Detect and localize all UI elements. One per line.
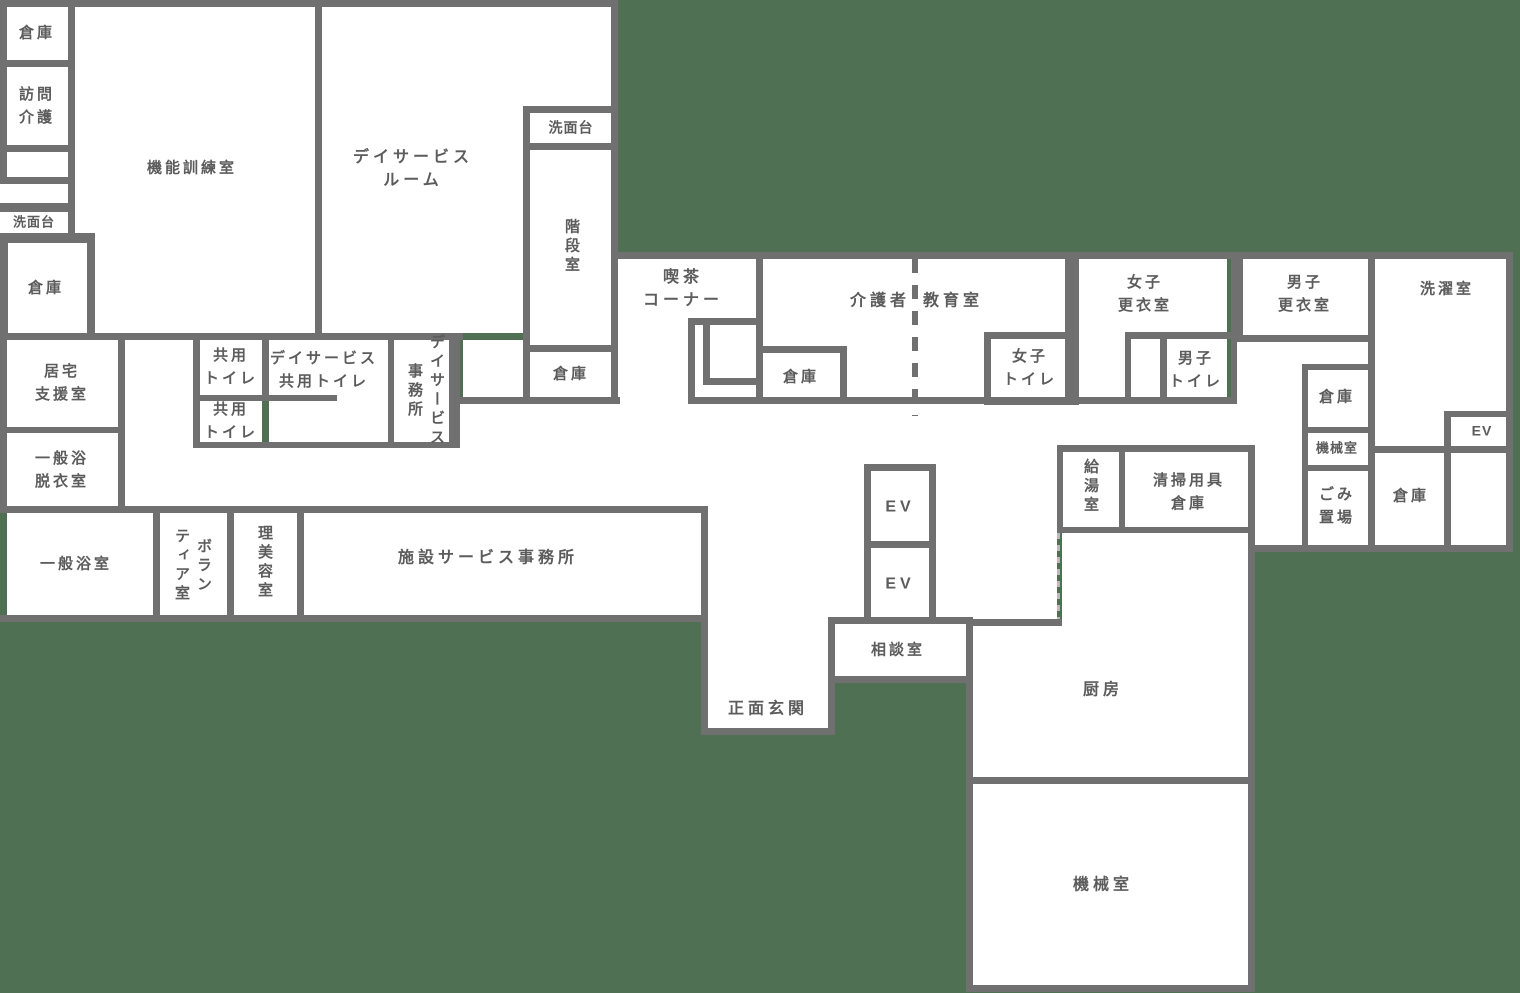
floor-kitchen-upper (1062, 533, 1248, 628)
room-label-machine-room-small: 機械室 (1316, 437, 1358, 460)
wall-segment (970, 619, 1062, 626)
room-label-caregiver: 介護者 (850, 290, 910, 313)
wall-segment (1444, 411, 1451, 545)
room-label-shared-toilet-1: 共用 トイレ (204, 344, 258, 390)
floor-strip-right (1237, 342, 1368, 364)
wall-segment (966, 777, 1255, 784)
wall-segment (0, 0, 7, 184)
wall-segment (1302, 364, 1308, 552)
floor-entrance-corridor (708, 404, 832, 728)
wall-segment (1371, 446, 1513, 453)
room-label-consultation: 相談室 (871, 639, 925, 662)
wall-segment (0, 233, 95, 243)
wall-segment (1057, 527, 1255, 533)
room-label-volunteer-room: ボラン ティア室 (170, 528, 214, 604)
room-label-home-visit-care: 訪問 介護 (19, 83, 55, 129)
wall-segment (297, 513, 304, 615)
room-label-cleaning-storage: 清掃用具 倉庫 (1153, 469, 1225, 515)
wall-segment (688, 318, 758, 325)
room-label-cafe-corner: 喫茶 コーナー (643, 266, 723, 312)
wall-segment (0, 177, 75, 184)
wall-segment (1160, 339, 1167, 397)
room-label-storage-right-2: 倉庫 (1393, 485, 1429, 508)
wall-segment (701, 728, 835, 735)
room-label-stairwell: 階段室 (560, 219, 582, 276)
room-label-mens-locker: 男子 更衣室 (1278, 271, 1332, 317)
wall-segment (1248, 545, 1513, 552)
wall-segment (701, 506, 708, 735)
room-label-general-bathroom: 一般浴室 (40, 553, 112, 576)
room-label-storage-stair: 倉庫 (553, 363, 589, 386)
wall-segment (388, 340, 394, 442)
wall-segment (1231, 342, 1237, 404)
floor-unlabeled-small (7, 152, 68, 177)
wall-segment (0, 60, 75, 67)
wall-segment (1368, 252, 1375, 545)
wall-segment (828, 683, 835, 735)
room-label-main-entrance: 正面玄関 (728, 698, 808, 721)
wall-segment (0, 506, 708, 513)
room-label-ds-shared-toilet: デイサービス 共用トイレ (270, 347, 378, 393)
room-label-education-room: 教育室 (923, 290, 983, 313)
room-label-elevator-2: EV (885, 573, 914, 596)
wall-segment (87, 233, 95, 333)
wall-segment (756, 252, 763, 404)
room-label-day-service-office: デイサービス 事務所 (403, 334, 447, 448)
room-label-storage-left-2: 倉庫 (28, 277, 64, 300)
wall-segment (227, 513, 234, 615)
wall-segment (68, 0, 75, 240)
room-label-washstand-left: 洗面台 (13, 211, 55, 234)
wall-segment (688, 397, 1233, 404)
wall-segment (966, 676, 973, 992)
wall-segment (523, 106, 530, 404)
wall-segment (1125, 332, 1233, 339)
room-label-general-bath-dressing: 一般浴 脱衣室 (35, 447, 89, 493)
kitchen-dashed-line (1057, 533, 1060, 619)
room-label-barber-beauty: 理美容室 (253, 525, 275, 601)
wall-segment (118, 333, 125, 513)
wall-segment (1302, 427, 1368, 433)
wall-segment (1057, 445, 1255, 452)
wall-segment (1057, 445, 1063, 533)
wall-segment (449, 335, 460, 448)
wall-segment (1506, 252, 1513, 552)
floor-hall-west (125, 448, 708, 506)
floor-entry-gap (0, 184, 68, 203)
room-label-elevator-1: EV (885, 496, 914, 519)
room-label-elevator-right: EV (1472, 420, 1493, 443)
wall-segment (0, 0, 618, 7)
wall-segment (1065, 252, 1079, 404)
wall-segment (523, 143, 618, 150)
room-label-womens-toilet: 女子 トイレ (1003, 345, 1057, 391)
cafe-inner-wall (703, 325, 758, 385)
wall-segment (1248, 445, 1255, 992)
wall-segment (0, 243, 8, 333)
wall-segment (966, 985, 1255, 992)
floor-slot-passage (463, 340, 528, 397)
wall-segment (523, 106, 618, 113)
wall-segment (611, 0, 618, 404)
education-room-divider-dashed-line (912, 259, 918, 416)
wall-segment (1125, 339, 1131, 397)
room-label-kitchen: 厨房 (1083, 679, 1123, 702)
room-label-mens-toilet: 男子 トイレ (1169, 347, 1223, 393)
wall-segment (0, 333, 7, 513)
wall-segment (1448, 411, 1513, 417)
room-label-washstand-stair: 洗面台 (549, 117, 594, 140)
room-label-day-service-room: デイサービス ルーム (353, 146, 473, 192)
wall-segment (1302, 465, 1368, 471)
wall-segment (449, 397, 620, 404)
wall-segment (688, 318, 695, 404)
wall-segment (523, 345, 618, 352)
wall-segment (153, 513, 160, 615)
wall-segment (193, 340, 200, 448)
wall-segment (1237, 335, 1373, 342)
wall-segment (1231, 252, 1243, 342)
room-label-function-training-room: 機能訓練室 (147, 157, 237, 180)
wall-segment (0, 145, 75, 152)
room-label-storage-top-left: 倉庫 (19, 22, 55, 45)
wall-segment (1302, 364, 1373, 370)
room-label-machine-room-large: 機械室 (1073, 874, 1133, 897)
room-label-storage-right-1: 倉庫 (1319, 386, 1355, 409)
wall-segment (315, 0, 322, 340)
room-label-home-support-room: 居宅 支援室 (35, 360, 89, 406)
room-label-laundry-room: 洗濯室 (1420, 278, 1474, 301)
wall-segment (1119, 452, 1125, 527)
room-label-garbage-area: ごみ 置場 (1319, 483, 1355, 529)
room-label-shared-toilet-2: 共用 トイレ (204, 398, 258, 444)
floor-plan: 倉庫 訪問 介護 洗面台 倉庫 機能訓練室 デイサービス ルーム 洗面台 階段室… (0, 0, 1520, 993)
wall-segment (0, 615, 708, 622)
wall-segment (0, 427, 125, 433)
wall-segment (0, 333, 463, 340)
room-label-womens-locker: 女子 更衣室 (1118, 271, 1172, 317)
wall-segment (262, 340, 269, 401)
room-label-storage-mid: 倉庫 (783, 366, 819, 389)
room-label-facility-office: 施設サービス事務所 (398, 547, 578, 570)
room-label-hot-water: 給湯室 (1079, 459, 1101, 516)
